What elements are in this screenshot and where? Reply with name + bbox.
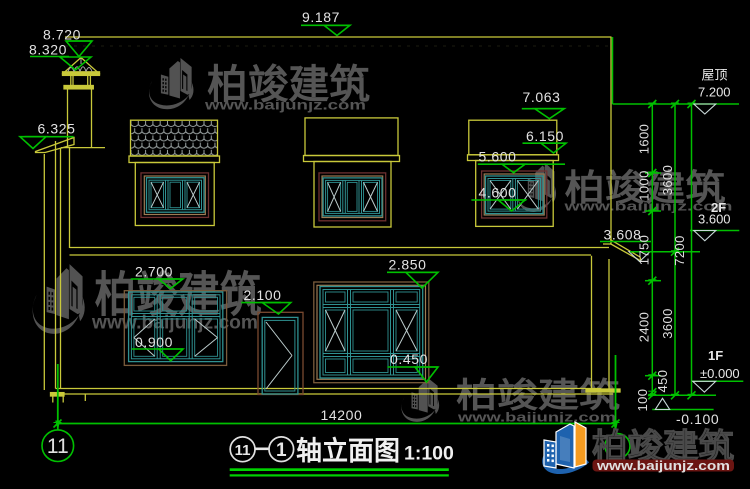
svg-text:1000: 1000: [637, 170, 652, 201]
svg-text:6.325: 6.325: [38, 121, 76, 137]
svg-text:11: 11: [47, 435, 69, 458]
svg-text:9.187: 9.187: [302, 9, 340, 25]
svg-text:2.850: 2.850: [389, 257, 427, 273]
svg-text:轴立面图: 轴立面图: [296, 436, 400, 466]
svg-text:100: 100: [635, 389, 650, 412]
svg-text:0.900: 0.900: [135, 334, 173, 350]
svg-text:1: 1: [276, 440, 287, 461]
svg-text:14200: 14200: [321, 407, 363, 423]
svg-text:450: 450: [655, 370, 670, 393]
svg-text:11: 11: [235, 442, 251, 459]
svg-text:5.600: 5.600: [479, 149, 517, 165]
svg-text:1600: 1600: [637, 124, 652, 155]
svg-text:www.baijunjz.com: www.baijunjz.com: [596, 458, 730, 473]
svg-text:6.150: 6.150: [526, 128, 564, 144]
svg-text:www.baijunjz.com: www.baijunjz.com: [204, 97, 366, 113]
svg-text:1750: 1750: [637, 235, 652, 266]
svg-text:1:100: 1:100: [404, 443, 454, 465]
svg-text:3600: 3600: [660, 165, 675, 196]
svg-text:7.063: 7.063: [523, 89, 561, 105]
svg-text:4.600: 4.600: [479, 185, 517, 201]
svg-text:1F: 1F: [708, 348, 723, 363]
svg-text:2.700: 2.700: [135, 264, 173, 280]
svg-text:www.baijunjz.com: www.baijunjz.com: [457, 410, 616, 425]
svg-text:7200: 7200: [672, 235, 687, 266]
svg-text:-0.100: -0.100: [676, 411, 719, 427]
svg-text:8.320: 8.320: [29, 42, 67, 58]
svg-text:2.100: 2.100: [244, 287, 282, 303]
svg-text:2400: 2400: [637, 312, 652, 343]
svg-text:±0.000: ±0.000: [700, 366, 740, 381]
svg-text:3.600: 3.600: [698, 212, 731, 227]
svg-text:3600: 3600: [660, 308, 675, 339]
svg-text:www.baijunjz.com: www.baijunjz.com: [91, 313, 258, 334]
svg-text:7.200: 7.200: [698, 85, 731, 100]
svg-text:8.720: 8.720: [43, 27, 81, 43]
svg-text:屋顶: 屋顶: [702, 68, 728, 83]
svg-text:0.450: 0.450: [390, 351, 428, 367]
